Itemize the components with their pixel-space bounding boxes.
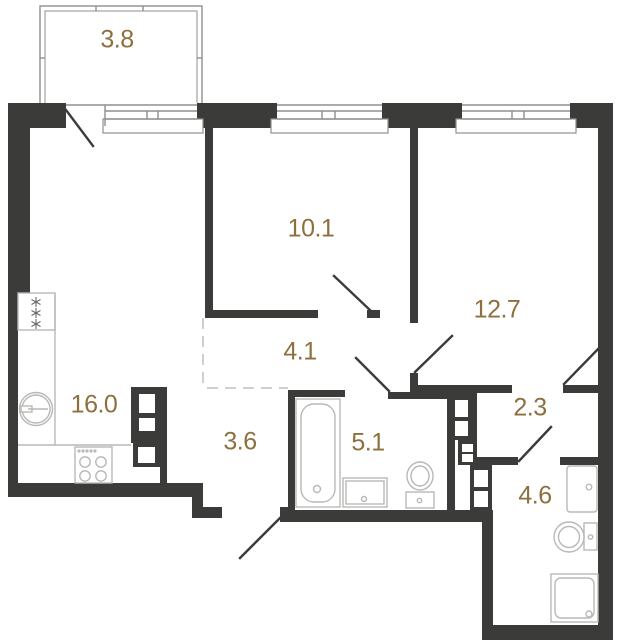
- wall: [598, 103, 613, 640]
- bathroom-sink: [343, 478, 387, 507]
- room-label-entry-hall: 3.6: [223, 428, 256, 457]
- wall: [8, 293, 18, 497]
- toilet-2: [554, 522, 597, 552]
- wall: [410, 373, 418, 392]
- room-label-room-2: 12.7: [474, 296, 521, 325]
- room-label-corridor: 2.3: [513, 394, 546, 423]
- wall: [410, 128, 418, 323]
- shower-tray: [551, 574, 598, 622]
- window-sill: [271, 119, 388, 133]
- wall: [418, 385, 512, 393]
- wall: [288, 390, 295, 510]
- room-label-bathroom: 5.1: [351, 429, 384, 458]
- wall: [367, 310, 380, 318]
- wall: [280, 510, 493, 522]
- room-label-kitchen-living-room: 16.0: [71, 391, 118, 420]
- bathroom-2-door-swing: [519, 427, 551, 461]
- window-kitchen: [66, 103, 203, 133]
- wall: [482, 510, 493, 628]
- window-sill: [103, 119, 203, 133]
- wall: [388, 392, 455, 399]
- bathroom-door-swing: [356, 358, 389, 391]
- zone-dashed-lines: [203, 318, 288, 390]
- entry-door-swing: [240, 517, 281, 558]
- wall: [205, 128, 213, 318]
- wall: [563, 385, 598, 393]
- wall: [8, 483, 203, 497]
- toilet: [406, 462, 434, 508]
- room-label-balcony: 3.8: [100, 26, 133, 55]
- walls: [8, 103, 613, 640]
- corridor-room-2-door-swing: [564, 345, 602, 384]
- bathroom-2-fixtures: [551, 466, 598, 622]
- kitchen-fixtures: [18, 293, 131, 483]
- floor-plan-drawing: [0, 0, 618, 640]
- wall: [560, 457, 613, 465]
- room-label-bedroom: 10.1: [288, 215, 335, 244]
- bathtub: [296, 399, 340, 507]
- wall: [482, 625, 613, 640]
- wall: [8, 103, 30, 293]
- wall: [197, 103, 277, 128]
- toilet-tank: [584, 523, 597, 550]
- room-label-hallway: 4.1: [283, 338, 316, 367]
- toilet-tank: [406, 492, 434, 508]
- balcony-glazing: [40, 6, 202, 110]
- kitchen-sink: [20, 393, 53, 426]
- window-room-2: [456, 103, 576, 133]
- bedroom-door-swing: [334, 276, 371, 311]
- bathroom-2-sink: [567, 466, 597, 512]
- room-label-bathroom-2: 4.6: [518, 482, 551, 511]
- wall: [382, 103, 462, 128]
- windows: [66, 103, 576, 133]
- window-sill: [456, 119, 576, 133]
- room-2-door-swing: [415, 336, 452, 372]
- window-bedroom: [271, 103, 388, 133]
- wall: [288, 390, 345, 397]
- wall: [205, 310, 318, 318]
- floor-plan: 3.8 10.1 12.7 4.1 16.0 3.6 5.1 2.3 4.6: [0, 0, 618, 640]
- wall: [192, 507, 222, 518]
- stove: [75, 447, 112, 483]
